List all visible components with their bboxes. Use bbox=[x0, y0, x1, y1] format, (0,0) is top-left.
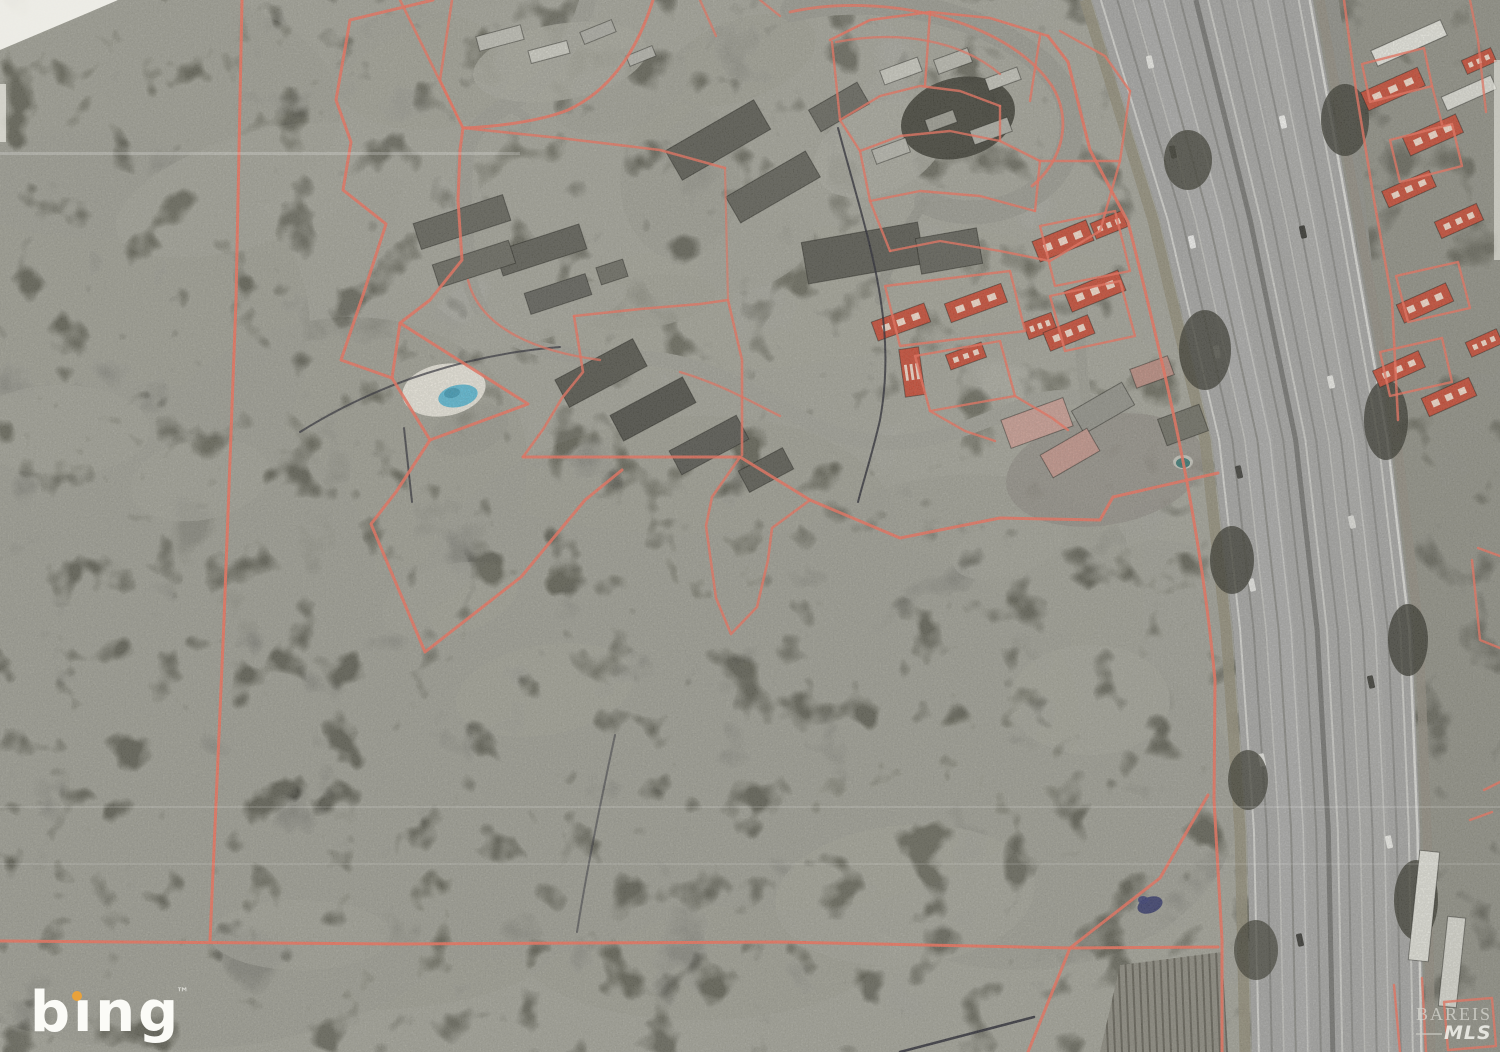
aerial-parcel-map: bıng ™ BAREIS MLS bbox=[0, 0, 1500, 1052]
bing-trademark: ™ bbox=[176, 986, 189, 1001]
scan-grain-light bbox=[0, 0, 1500, 1052]
map-canvas bbox=[0, 0, 1500, 1052]
bing-logo-i-dot bbox=[72, 991, 82, 1001]
bing-logo: bıng bbox=[30, 980, 181, 1045]
mls-watermark-dash bbox=[1416, 1033, 1442, 1035]
mls-watermark: MLS bbox=[1444, 1022, 1492, 1044]
